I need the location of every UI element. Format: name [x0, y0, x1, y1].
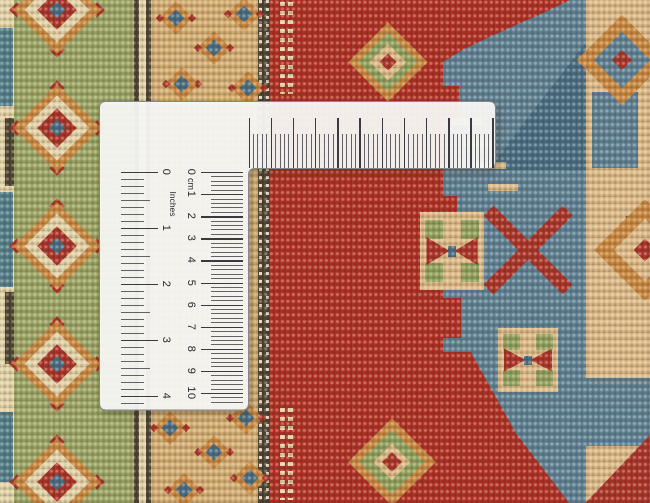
ruler-outline: [100, 102, 496, 411]
l-square-ruler-body: [0, 0, 650, 503]
rug-with-ruler-photo: cm Inches 01234567891001234: [0, 0, 650, 503]
